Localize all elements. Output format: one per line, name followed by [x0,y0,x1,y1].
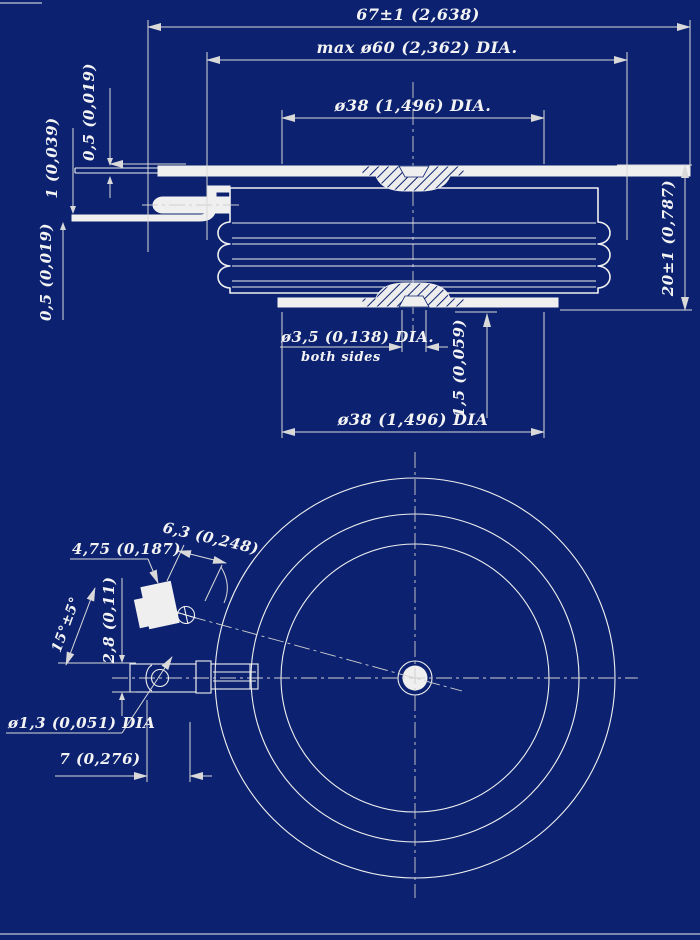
gate-lead-joint [216,186,230,192]
dim-lead-thickness-top: 0,5 (0,019) [80,63,98,161]
dim-lead-angle: 15°±5° [49,595,84,655]
note-both-sides: both sides [301,350,381,365]
technical-drawing-page: 67±1 (2,638) max ø60 (2,362) DIA. ø38 (1… [0,0,700,940]
plan-view: 6,3 (0,248) 4,75 (0,187) 15°±5° 2,8 (0,1… [6,452,638,898]
fin-ridge-lines [232,223,596,287]
ceramic-body-outline [218,188,610,293]
dim-terminal-thickness: 1 (0,039) [43,117,61,198]
dim-height: 20±1 (0,787) [659,180,677,297]
plan-view-dimensions: 6,3 (0,248) 4,75 (0,187) 15°±5° 2,8 (0,1… [6,518,261,782]
side-view: 67±1 (2,638) max ø60 (2,362) DIA. ø38 (1… [37,5,692,438]
drawing-canvas: 67±1 (2,638) max ø60 (2,362) DIA. ø38 (1… [0,0,700,940]
drawing-frame [0,3,700,934]
dim-max-diameter: max ø60 (2,362) DIA. [316,38,517,57]
dim-lead-thickness-bottom: 0,5 (0,019) [37,223,55,321]
dim-wire-length: 7 (0,276) [59,750,140,768]
lower-gate-terminal [130,661,258,693]
dim-center-hole-dia: ø3,5 (0,138) DIA. [280,328,434,346]
dim-recess-depth: 1,5 (0,059) [450,319,468,417]
dim-tab-length: 4,75 (0,187) [72,540,181,558]
dim-terminal-thickness-plan: 2,8 (0,11) [100,576,118,664]
dim-overall-width: 67±1 (2,638) [356,5,480,24]
dim-gate-wire-dia: ø1,3 (0,051) DIA [7,714,155,732]
upper-gate-terminal [132,581,179,630]
cathode-lead-thin-tail [75,168,158,173]
dim-pole-dia-top: ø38 (1,496) DIA. [334,96,492,115]
